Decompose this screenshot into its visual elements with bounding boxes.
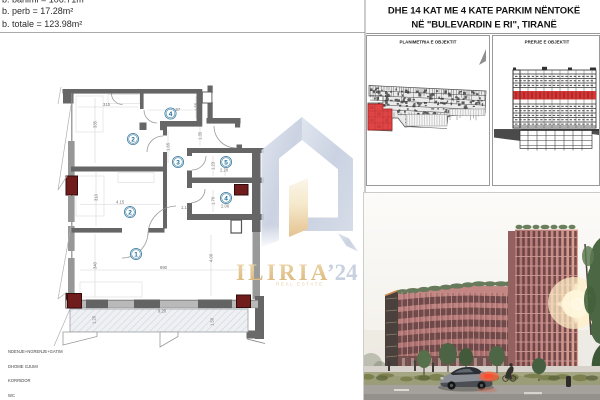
svg-text:4.15: 4.15 [116, 200, 125, 205]
svg-text:1: 1 [134, 251, 138, 258]
svg-text:1.15: 1.15 [181, 205, 190, 210]
svg-text:1.65: 1.65 [166, 142, 171, 151]
svg-text:9.20: 9.20 [158, 309, 167, 314]
svg-text:2: 2 [128, 209, 132, 216]
svg-text:1.55: 1.55 [194, 102, 199, 111]
svg-text:335: 335 [93, 120, 98, 128]
svg-text:DHE 14 KAT ME 4 KATE PARKIM NË: DHE 14 KAT ME 4 KATE PARKIM NËNTOKË [388, 6, 580, 17]
svg-text:1.20: 1.20 [92, 315, 97, 324]
svg-text:’24: ’24 [327, 260, 358, 285]
svg-text:KORRIDOR: KORRIDOR [8, 378, 31, 383]
svg-text:1.35: 1.35 [198, 131, 203, 140]
svg-text:WC: WC [8, 393, 15, 398]
svg-text:1.23: 1.23 [211, 161, 216, 170]
svg-text:NDENJE+NGRENJE+GATIM: NDENJE+NGRENJE+GATIM [8, 349, 63, 354]
svg-text:310: 310 [94, 193, 99, 201]
svg-text:DHOME GJUMI: DHOME GJUMI [8, 364, 38, 369]
svg-text:4.00: 4.00 [209, 253, 214, 262]
svg-text:4: 4 [169, 111, 173, 118]
svg-text:b. totale = 123.98m²: b. totale = 123.98m² [2, 19, 82, 29]
svg-text:1.50: 1.50 [210, 317, 215, 326]
svg-text:b. perb = 17.28m²: b. perb = 17.28m² [2, 6, 73, 16]
svg-text:1.70: 1.70 [211, 196, 216, 205]
svg-text:2.06: 2.06 [221, 204, 230, 209]
svg-text:REAL ESTATE: REAL ESTATE [276, 282, 323, 287]
svg-text:b. banimi = 106.71m: b. banimi = 106.71m [2, 0, 84, 5]
svg-text:5: 5 [224, 159, 228, 166]
svg-text:2.20: 2.20 [220, 168, 229, 173]
svg-text:340: 340 [93, 261, 98, 269]
svg-text:PRERJE E OBJEKTIT: PRERJE E OBJEKTIT [525, 40, 570, 45]
svg-text:NË "BULEVARDIN E RI", TIRANË: NË "BULEVARDIN E RI", TIRANË [411, 20, 556, 31]
svg-text:2: 2 [131, 136, 135, 143]
svg-text:315: 315 [103, 102, 111, 107]
svg-text:4: 4 [224, 195, 228, 202]
svg-text:3: 3 [176, 159, 180, 166]
svg-text:890: 890 [160, 265, 168, 270]
svg-text:PLANIMETRIA E OBJEKTIT: PLANIMETRIA E OBJEKTIT [400, 40, 457, 45]
